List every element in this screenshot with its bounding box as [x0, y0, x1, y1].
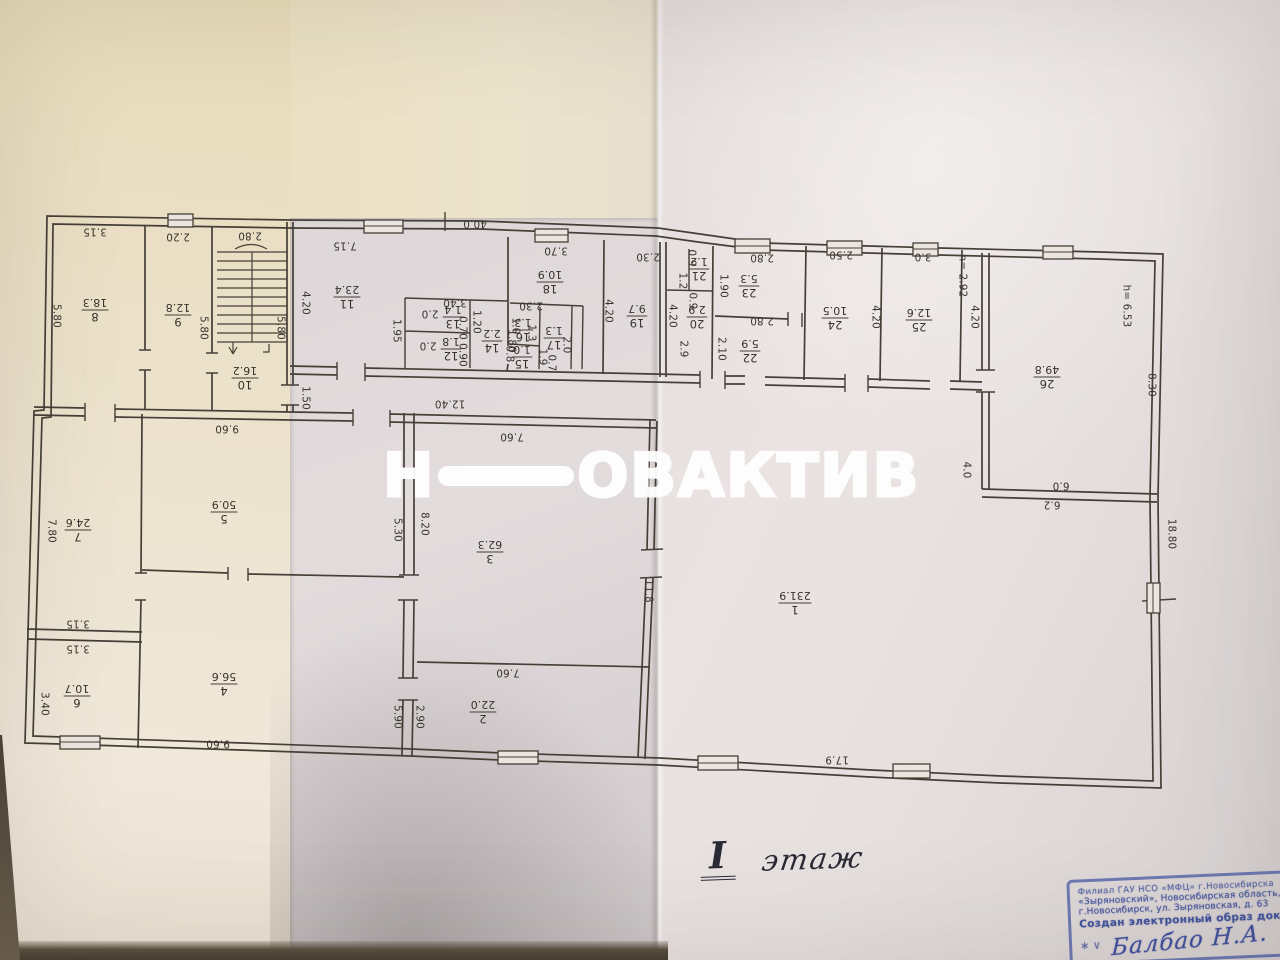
svg-text:5: 5 [220, 512, 227, 526]
dimension-label: 8.30 [1146, 373, 1158, 397]
room-label: 1123.4 [334, 283, 361, 311]
dimension-label: 1.50 [300, 386, 312, 410]
svg-text:11: 11 [340, 297, 355, 311]
dimension-label: 2.0 [561, 337, 573, 354]
dimension-label: 2.80 [750, 315, 774, 327]
dimension-label: 2.90 [414, 705, 426, 729]
svg-text:3: 3 [486, 552, 493, 566]
floor-number-numeral: I [699, 836, 736, 881]
dimension-label: 2.50 [829, 249, 853, 261]
room-label: 2512.6 [906, 306, 933, 334]
dimension-label: 5.80 [51, 304, 63, 328]
room-label: 1231.9 [779, 589, 812, 617]
dimension-label: 7.15 [333, 240, 357, 252]
document-stamp: Филиал ГАУ НСО «МФЦ» г.Новосибирска «Зыр… [1066, 868, 1280, 960]
dimension-label: 11.8 [643, 579, 655, 603]
room-label: 225.9 [740, 337, 761, 365]
svg-text:22: 22 [743, 351, 758, 365]
dimension-label: 3.15 [66, 618, 90, 630]
svg-text:12.8: 12.8 [166, 301, 191, 314]
dimension-label: 5.30 [392, 518, 404, 542]
svg-text:16.2: 16.2 [233, 364, 258, 377]
svg-text:12: 12 [444, 349, 459, 363]
svg-text:2.2: 2.2 [483, 327, 501, 340]
room-label: 1016.2 [232, 364, 259, 392]
svg-text:26: 26 [1040, 377, 1055, 391]
room-label: 222.0 [470, 698, 497, 726]
svg-text:25: 25 [912, 320, 927, 334]
room-label: 456.6 [211, 670, 238, 698]
watermark-logo: Н ОВАКТИВ [383, 443, 920, 509]
dimension-label: 3.15 [83, 226, 107, 238]
svg-text:22.0: 22.0 [471, 698, 496, 711]
dimension-label: 2.80 [238, 230, 262, 242]
dimension-label: 2.30 [519, 300, 543, 312]
dimension-label: 3.40 [39, 692, 51, 716]
svg-text:49.8: 49.8 [1035, 363, 1060, 376]
svg-text:14: 14 [485, 341, 500, 355]
watermark-letter-n: Н [383, 446, 435, 506]
svg-text:1: 1 [791, 603, 798, 617]
svg-text:9.7: 9.7 [628, 302, 646, 315]
dimension-label: 40.0 [463, 218, 487, 230]
dimension-label: 0.9 [686, 250, 698, 267]
dimension-label: 5.80 [198, 316, 210, 340]
svg-text:18: 18 [543, 282, 558, 296]
svg-text:2: 2 [479, 712, 486, 726]
dimension-label: 18.80 [1166, 519, 1178, 549]
svg-text:4: 4 [220, 684, 227, 698]
dimension-label: 7.60 [500, 431, 524, 443]
dimension-label: 2.0 [422, 308, 439, 320]
room-label: 724.6 [65, 516, 92, 544]
room-label: 142.2 [482, 327, 503, 355]
svg-text:12.6: 12.6 [907, 306, 932, 319]
dimension-label: 1.0 [510, 318, 522, 335]
svg-text:18.3: 18.3 [83, 296, 108, 309]
dimension-label: 2.9 [678, 341, 690, 358]
dimension-label: 2.80 [750, 252, 774, 264]
svg-text:21: 21 [692, 269, 707, 283]
svg-text:20: 20 [690, 317, 705, 331]
dimension-label: 1.20 [471, 310, 483, 334]
svg-text:23: 23 [742, 286, 757, 300]
dimension-label: h= 6.53 [1121, 285, 1133, 328]
dimension-label: 2.0 [420, 340, 437, 352]
dimension-label: 2.30 [636, 251, 660, 263]
dimension-label: 2.20 [166, 231, 190, 243]
dimension-label: 6.2 [1044, 499, 1061, 511]
dimension-label: 4.20 [603, 299, 615, 323]
svg-text:50.9: 50.9 [212, 498, 237, 511]
dimension-label: 1.3 [526, 325, 538, 342]
pen-marks: ∗ ∨ [1080, 938, 1101, 952]
dimension-label: h= 2.92 [957, 255, 969, 298]
dimension-label: 2.10 [716, 337, 728, 361]
svg-text:9: 9 [174, 315, 181, 329]
svg-text:231.9: 231.9 [779, 589, 811, 602]
room-label: 610.7 [64, 682, 91, 710]
svg-text:5.3: 5.3 [740, 272, 758, 285]
svg-text:6: 6 [73, 696, 80, 710]
dimension-label: 9.60 [215, 423, 239, 435]
floor-note-handwriting: I этаж [699, 831, 865, 881]
dimension-label: 5.80 [275, 316, 287, 340]
dimension-label: 12.40 [435, 398, 465, 410]
svg-text:23.4: 23.4 [335, 283, 360, 296]
room-label: 1810.9 [537, 268, 564, 296]
room-label: 235.3 [739, 272, 760, 300]
dimension-label: 3.70 [544, 245, 568, 257]
dimension-label: 0.9 [687, 293, 699, 310]
svg-text:10: 10 [238, 378, 253, 392]
svg-text:56.6: 56.6 [212, 670, 237, 683]
dimension-label: 3.15 [66, 643, 90, 655]
dimension-label: 4.20 [870, 305, 882, 329]
dimension-label: 0.90 [457, 343, 469, 367]
svg-text:24.6: 24.6 [66, 516, 91, 529]
svg-text:62.3: 62.3 [478, 538, 503, 551]
dimension-label: 4.20 [969, 305, 981, 329]
svg-text:10.7: 10.7 [65, 682, 90, 695]
dimension-label: 7.60 [496, 667, 520, 679]
svg-text:19: 19 [630, 316, 645, 330]
svg-text:7: 7 [74, 530, 81, 544]
bottom-left-block-walls [27, 414, 404, 748]
dimension-label: 1.90 [718, 274, 730, 298]
svg-text:1.3: 1.3 [545, 324, 563, 337]
dimension-label: 17.9 [825, 754, 849, 766]
room-label: 2649.8 [1034, 363, 1061, 391]
svg-text:10.9: 10.9 [538, 268, 563, 281]
dimension-label: 4.20 [667, 304, 679, 328]
dimension-label: 4.20 [300, 291, 312, 315]
room-label: 2410.5 [822, 304, 849, 332]
dimension-label: 0.7 [546, 355, 558, 372]
dimension-label: 1.95 [391, 319, 403, 343]
room-label: 912.8 [165, 301, 192, 329]
watermark-dash [438, 466, 574, 486]
room-label: 818.3 [82, 296, 109, 324]
dimension-label: 1.2 [677, 273, 689, 290]
dimension-label: 9.60 [206, 738, 230, 750]
dimension-label: 8.20 [419, 512, 431, 536]
photographed-floor-plan-sheet: 1231.9222.0362.3456.6550.9610.7724.6818.… [0, 0, 1280, 960]
floor-word: этаж [760, 840, 867, 878]
middle-wall [34, 403, 656, 428]
dimension-label: 3.40 [443, 297, 467, 309]
dimension-label: 6.0 [1053, 480, 1070, 492]
room-label: 199.7 [627, 302, 648, 330]
svg-text:5.9: 5.9 [741, 337, 759, 350]
dimension-label: 4.0 [961, 462, 973, 479]
svg-text:24: 24 [828, 318, 843, 332]
corridor-wall [290, 362, 982, 392]
dimension-label: 7.80 [46, 519, 58, 543]
svg-text:15: 15 [515, 357, 530, 371]
watermark-word: ОВАКТИВ [577, 446, 920, 506]
dimension-label: 0.70 [457, 316, 469, 340]
room-label: 550.9 [211, 498, 238, 526]
dimension-label: 0.8 [504, 346, 516, 363]
room-label: 362.3 [477, 538, 504, 566]
svg-text:8: 8 [91, 310, 98, 324]
svg-text:10.5: 10.5 [823, 304, 848, 317]
dimension-label: 5.90 [392, 705, 404, 729]
dimension-label: 3.0 [915, 251, 932, 263]
